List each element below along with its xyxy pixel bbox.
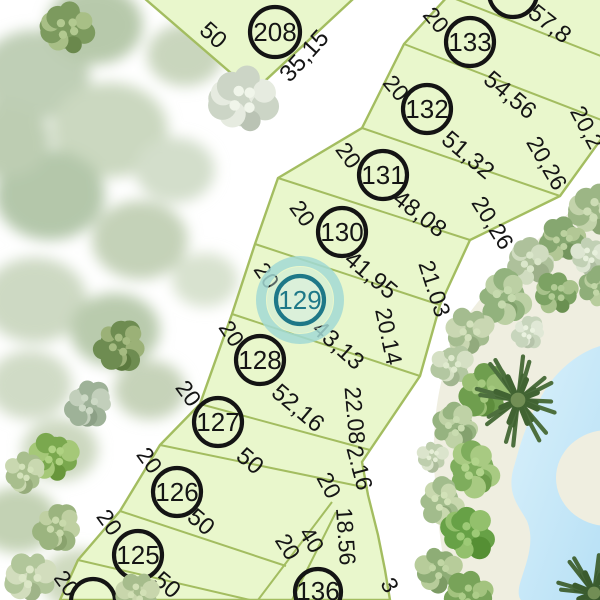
lot-marker-126[interactable]: 126 <box>153 468 201 516</box>
blurred-tree <box>172 253 238 307</box>
lot-number-208: 208 <box>253 17 296 47</box>
map-canvas: 20 20 20 20 20 20 20 20 20 20 50 35,15 5… <box>0 0 600 600</box>
lot-number-129: 129 <box>278 285 321 315</box>
lot-marker-127[interactable]: 127 <box>194 398 242 446</box>
lot-marker-133[interactable]: 133 <box>446 18 494 66</box>
lot-number-130: 130 <box>320 217 363 247</box>
blurred-tree <box>135 137 215 203</box>
lot-marker-125[interactable]: 125 <box>114 531 162 579</box>
lot-number-125: 125 <box>116 540 159 570</box>
blurred-tree <box>92 201 188 280</box>
subdivision-map: 20 20 20 20 20 20 20 20 20 20 50 35,15 5… <box>0 0 600 600</box>
lot-number-128: 128 <box>238 345 281 375</box>
lot-marker-131[interactable]: 131 <box>359 151 407 199</box>
lot-number-127: 127 <box>196 407 239 437</box>
lot-marker-132[interactable]: 132 <box>403 85 451 133</box>
lot-number-136: 136 <box>296 576 339 600</box>
lot-number-126: 126 <box>155 477 198 507</box>
lot-marker-128[interactable]: 128 <box>236 336 284 384</box>
segment-label: 18.56 <box>331 507 361 566</box>
lot-marker-136[interactable]: 136 <box>295 569 341 600</box>
lot-number-133: 133 <box>448 27 491 57</box>
lot-marker-208[interactable]: 208 <box>250 7 300 57</box>
tree <box>4 553 56 600</box>
lot-marker-129-selected[interactable]: 129 <box>276 276 324 324</box>
lot-number-132: 132 <box>405 94 448 124</box>
lot-number-131: 131 <box>361 160 404 190</box>
width-label-right: 22.08 <box>340 385 371 445</box>
lot-marker-130[interactable]: 130 <box>318 208 366 256</box>
